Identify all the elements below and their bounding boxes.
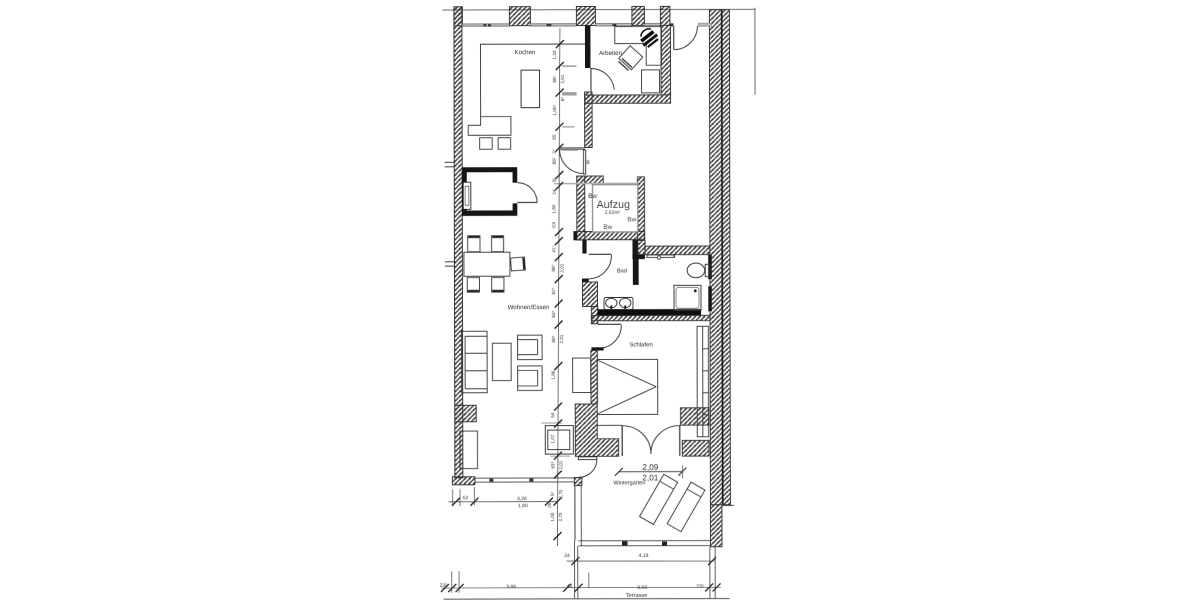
svg-text:63⁵: 63⁵ [550, 461, 555, 468]
svg-text:Schlafen: Schlafen [629, 341, 652, 348]
svg-text:Kochen: Kochen [514, 49, 536, 56]
svg-text:65: 65 [552, 134, 557, 140]
svg-text:Bad: Bad [617, 267, 627, 274]
svg-text:3,88: 3,88 [506, 584, 516, 590]
svg-text:52: 52 [463, 495, 469, 501]
svg-text:Arbeiten: Arbeiten [599, 50, 623, 57]
svg-text:2,01: 2,01 [560, 74, 565, 83]
svg-text:2,09: 2,09 [642, 463, 658, 472]
svg-text:41⁵: 41⁵ [551, 245, 556, 252]
svg-text:Bw: Bw [603, 224, 612, 231]
svg-text:4,19: 4,19 [639, 553, 649, 559]
svg-text:2,70: 2,70 [558, 512, 563, 521]
svg-text:2,70: 2,70 [558, 489, 563, 498]
svg-text:1,60: 1,60 [551, 204, 556, 213]
svg-text:88⁵: 88⁵ [551, 264, 556, 271]
svg-text:ds: ds [585, 159, 590, 165]
svg-text:1,86: 1,86 [551, 370, 556, 379]
svg-text:81⁵: 81⁵ [551, 287, 556, 294]
svg-text:3,26: 3,26 [517, 496, 527, 502]
svg-text:26: 26 [547, 502, 552, 508]
svg-text:1,07: 1,07 [550, 434, 555, 443]
svg-text:2,01: 2,01 [559, 334, 564, 343]
svg-text:54: 54 [550, 412, 555, 418]
svg-text:2,01: 2,01 [559, 263, 564, 272]
svg-text:5¹: 5¹ [550, 492, 555, 497]
svg-text:88⁵: 88⁵ [552, 75, 557, 82]
svg-text:89⁵: 89⁵ [551, 335, 556, 342]
svg-text:Bw: Bw [588, 193, 597, 200]
svg-text:2,83m²: 2,83m² [605, 210, 621, 216]
svg-text:Terrasse: Terrasse [626, 593, 647, 599]
svg-text:40: 40 [567, 584, 573, 590]
svg-text:Wintergarten: Wintergarten [613, 479, 645, 486]
svg-text:Bw: Bw [627, 216, 636, 223]
svg-text:1,00: 1,00 [550, 512, 555, 521]
svg-text:2,01: 2,01 [558, 460, 563, 469]
svg-text:Wohnen/Essen: Wohnen/Essen [508, 304, 550, 311]
svg-text:1,05⁵: 1,05⁵ [552, 105, 557, 116]
svg-text:23⁵: 23⁵ [696, 584, 704, 590]
svg-text:63⁵: 63⁵ [551, 310, 556, 317]
svg-text:88¹: 88¹ [552, 157, 557, 164]
svg-text:2,01: 2,01 [642, 473, 658, 482]
svg-text:2⁵: 2⁵ [552, 149, 557, 154]
svg-text:/24: /24 [551, 221, 556, 228]
svg-text:24: 24 [564, 553, 570, 559]
svg-text:3⁵: 3⁵ [552, 178, 557, 183]
svg-text:1,33: 1,33 [552, 50, 557, 59]
svg-text:6⁵: 6⁵ [560, 97, 565, 102]
svg-text:24: 24 [552, 189, 557, 195]
svg-text:1,80: 1,80 [518, 503, 528, 509]
